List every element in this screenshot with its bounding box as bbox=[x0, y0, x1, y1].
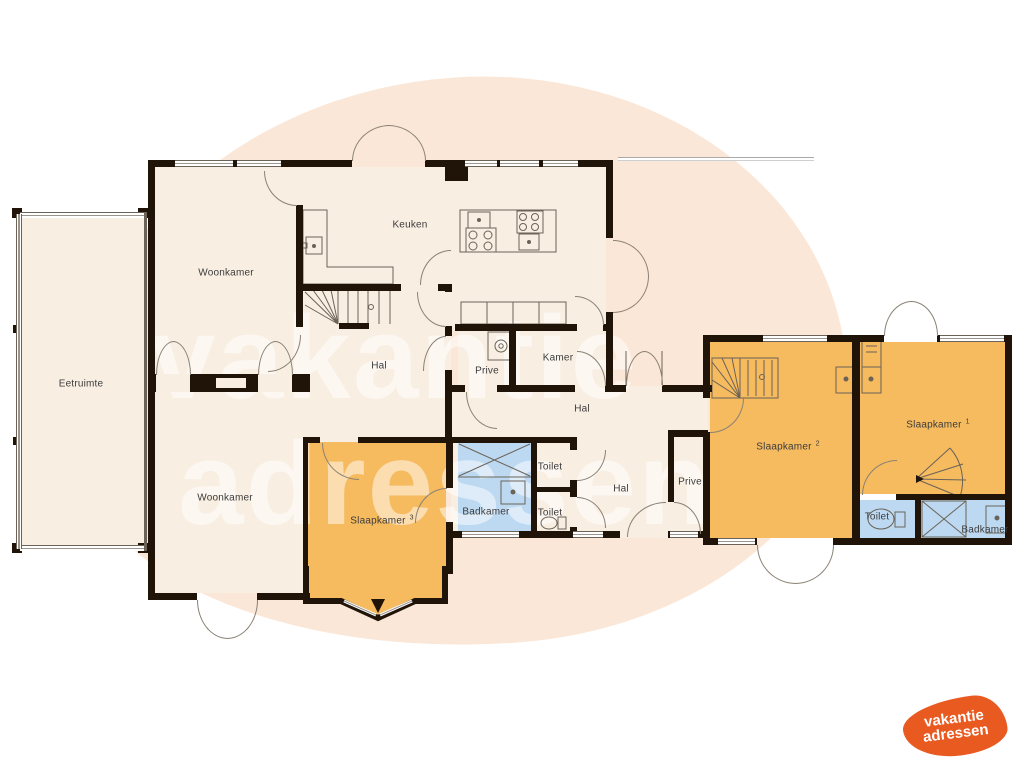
label-slaapkamer-2-number: 2 bbox=[816, 441, 820, 448]
window bbox=[20, 212, 144, 218]
wall bbox=[148, 593, 197, 600]
label-slaapkamer-3-number: 3 bbox=[410, 515, 414, 522]
label-badkamer-east: Badkamer bbox=[961, 525, 1008, 536]
wall bbox=[445, 167, 468, 181]
door-swing bbox=[795, 545, 834, 584]
window bbox=[543, 160, 578, 167]
label-slaapkamer-1: Slaapkamer1 bbox=[906, 420, 969, 431]
label-prive-east: Prive bbox=[678, 477, 702, 488]
label-toilet-top: Toilet bbox=[538, 462, 563, 473]
label-eetruimte: Eetruimte bbox=[59, 379, 104, 390]
label-slaapkamer-1-text: Slaapkamer bbox=[906, 420, 961, 431]
room-slaapkamer-2 bbox=[710, 342, 852, 538]
wall bbox=[915, 500, 921, 538]
room-woonkamer-bottom bbox=[155, 377, 303, 593]
window bbox=[573, 531, 603, 538]
wall bbox=[445, 326, 452, 336]
wall bbox=[833, 538, 1012, 545]
wall bbox=[303, 284, 401, 291]
window bbox=[500, 160, 539, 167]
wall bbox=[453, 437, 577, 443]
wall bbox=[606, 160, 613, 238]
door-swing bbox=[227, 600, 258, 639]
wall bbox=[257, 593, 310, 600]
label-badkamer-west: Badkamer bbox=[462, 507, 509, 518]
window bbox=[237, 160, 281, 167]
room-badkamer-west bbox=[458, 443, 531, 538]
label-slaapkamer-3-text: Slaapkamer bbox=[350, 516, 405, 527]
room-prive-west bbox=[458, 331, 509, 386]
wall bbox=[570, 443, 577, 450]
label-hal-corridor: Hal bbox=[613, 484, 629, 495]
wall bbox=[703, 432, 710, 545]
wall bbox=[445, 284, 452, 292]
wall bbox=[144, 212, 147, 551]
wall bbox=[1005, 335, 1012, 545]
door-swing bbox=[757, 545, 796, 584]
label-keuken: Keuken bbox=[392, 220, 427, 231]
window bbox=[16, 214, 22, 549]
label-prive-west: Prive bbox=[475, 366, 499, 377]
wall bbox=[605, 385, 613, 392]
label-woonkamer-bottom: Woonkamer bbox=[197, 493, 253, 504]
terrain-line bbox=[618, 157, 814, 161]
label-hal-center: Hal bbox=[371, 361, 387, 372]
wall bbox=[296, 205, 303, 327]
wall bbox=[603, 324, 613, 331]
wall bbox=[852, 342, 860, 538]
label-slaapkamer-2-text: Slaapkamer bbox=[756, 442, 811, 453]
window bbox=[175, 160, 233, 167]
wall bbox=[613, 385, 626, 392]
window bbox=[718, 538, 755, 545]
wall bbox=[446, 443, 453, 488]
wall bbox=[451, 385, 465, 392]
window bbox=[465, 160, 497, 167]
window bbox=[462, 531, 519, 538]
wall bbox=[358, 437, 453, 443]
label-slaapkamer-3: Slaapkamer3 bbox=[350, 516, 413, 527]
wall bbox=[509, 331, 516, 388]
wall bbox=[303, 437, 308, 570]
vakantieadressen-logo: vakantie adressen bbox=[900, 692, 1010, 762]
door-swing bbox=[197, 600, 228, 639]
window bbox=[763, 335, 827, 342]
label-toilet-east: Toilet bbox=[865, 512, 890, 523]
wall bbox=[455, 324, 577, 331]
label-woonkamer-top: Woonkamer bbox=[198, 268, 254, 279]
wall bbox=[497, 385, 575, 392]
door-swing bbox=[911, 301, 938, 336]
label-kamer: Kamer bbox=[543, 353, 573, 364]
label-slaapkamer-2: Slaapkamer2 bbox=[756, 442, 819, 453]
floorplan-canvas: vakantie adressen bbox=[0, 0, 1024, 768]
wall bbox=[445, 370, 452, 442]
label-toilet-bottom: Toilet bbox=[538, 508, 563, 519]
door-swing bbox=[884, 301, 912, 336]
wall bbox=[668, 430, 708, 437]
wall bbox=[446, 522, 453, 574]
door-opening bbox=[258, 374, 292, 392]
wall bbox=[703, 335, 710, 398]
wall bbox=[570, 480, 577, 497]
label-slaapkamer-1-number: 1 bbox=[966, 419, 970, 426]
label-hal-east: Hal bbox=[574, 404, 590, 415]
door-opening bbox=[216, 378, 246, 388]
wall bbox=[668, 430, 674, 502]
wall bbox=[339, 323, 369, 329]
door-opening bbox=[156, 374, 190, 392]
window bbox=[940, 335, 1004, 342]
wall bbox=[896, 494, 1005, 500]
window bbox=[20, 545, 144, 551]
